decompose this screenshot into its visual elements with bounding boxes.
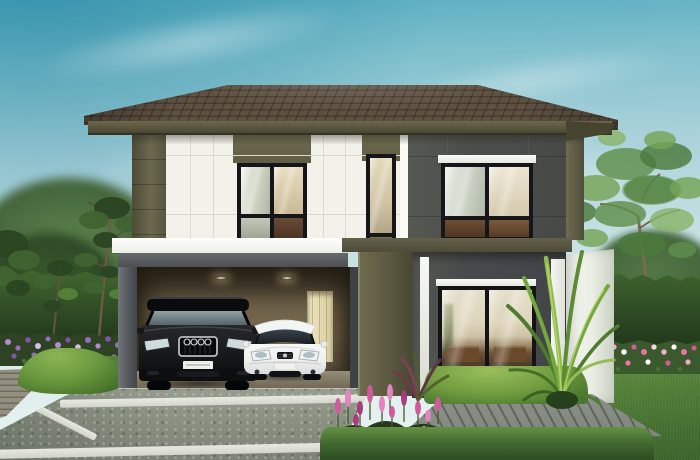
olive-corner-trim <box>566 135 584 240</box>
upper-right-window <box>441 163 533 241</box>
dracaena-plant <box>502 242 622 410</box>
vehicle-black-suv <box>136 295 260 390</box>
window-pane <box>274 167 303 214</box>
upper-left-window <box>237 163 307 245</box>
roof-fascia <box>88 121 612 135</box>
panel-joint <box>190 135 191 239</box>
window-pane <box>445 220 485 237</box>
vehicle-white-hatchback <box>243 310 327 380</box>
lit-wall-edge <box>400 135 408 239</box>
panel-joint <box>345 135 346 239</box>
olive-pilaster-left <box>132 135 166 239</box>
window-pane <box>489 167 529 216</box>
window-pane <box>445 167 485 216</box>
window-pane <box>241 167 270 214</box>
eave-shadow <box>132 135 584 145</box>
ceiling-light <box>280 276 294 280</box>
carport-roof-fascia <box>118 253 348 267</box>
window-pane <box>370 158 392 233</box>
carport-roof-white-band <box>112 238 342 253</box>
roof-soffit-right <box>566 121 612 141</box>
upper-narrow-window <box>366 154 396 251</box>
hedge-bottom-foreground <box>320 427 654 460</box>
window-pane <box>489 220 529 237</box>
scene-house-rendering <box>0 0 700 460</box>
ceiling-light <box>214 276 228 280</box>
window-header-strip <box>438 155 536 163</box>
panel-joint <box>323 135 324 239</box>
carport-pier-left <box>118 267 137 388</box>
panel-joint <box>213 135 214 239</box>
